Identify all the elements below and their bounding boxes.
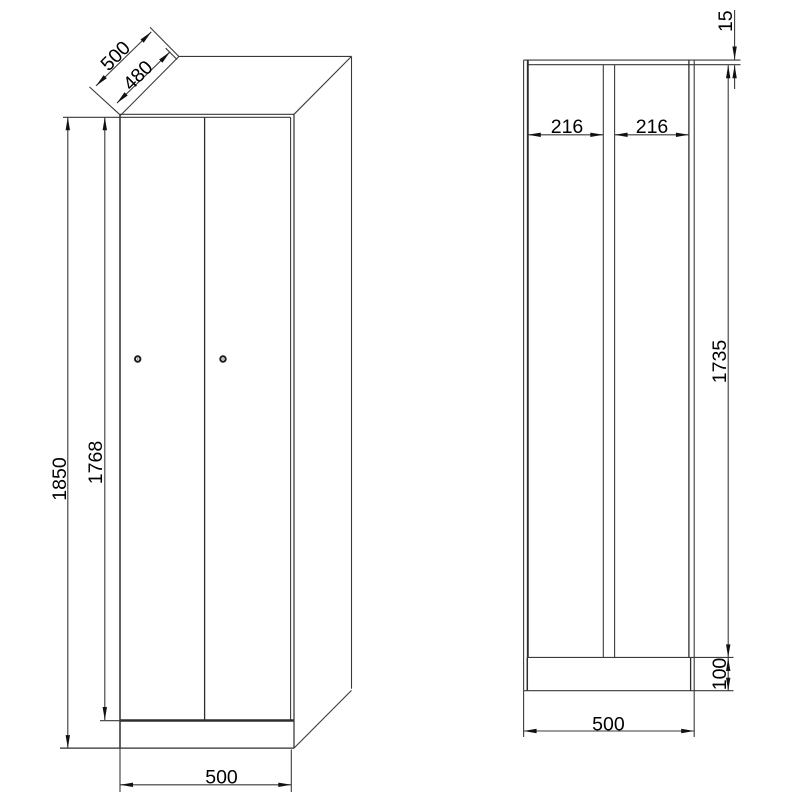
svg-text:100: 100 [709,658,731,691]
svg-text:216: 216 [551,116,584,138]
svg-text:216: 216 [636,116,669,138]
svg-text:1850: 1850 [49,457,71,501]
svg-text:15: 15 [715,10,737,32]
svg-text:1768: 1768 [85,441,107,484]
svg-text:500: 500 [205,767,238,789]
svg-text:500: 500 [592,713,625,735]
svg-text:1735: 1735 [709,340,731,384]
